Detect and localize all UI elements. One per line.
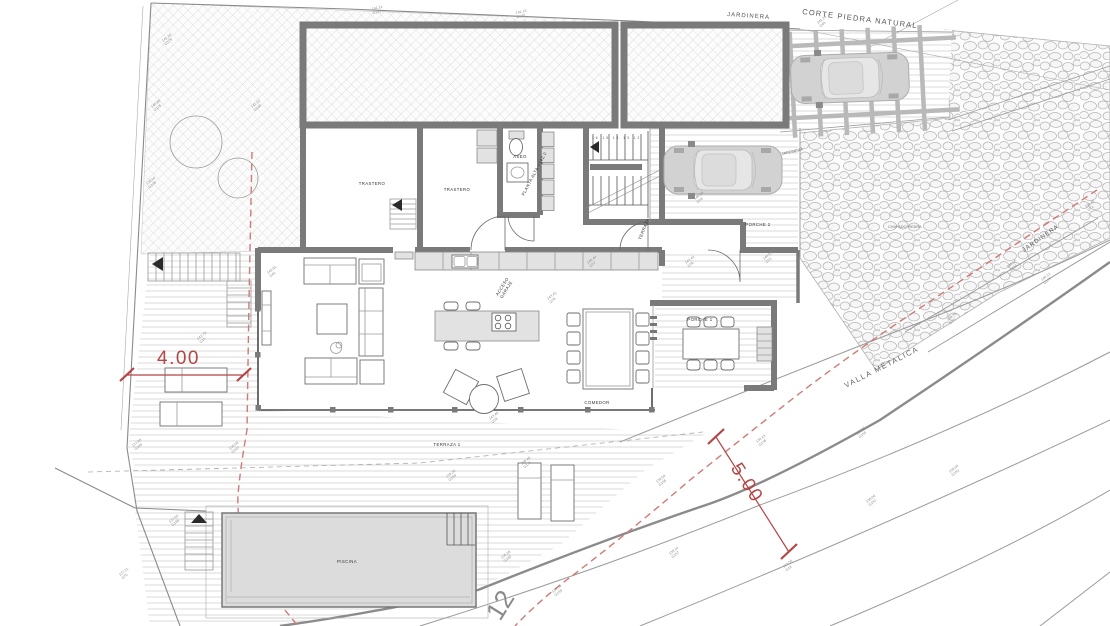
room-label-porche2: PORCHE 2 [745,222,770,227]
room-label-aseo: ASEO [513,154,527,159]
entrance-step [395,252,413,259]
survey-point-label: 133.50G16 [782,559,796,572]
car-in-carport [664,141,782,199]
cooktop [492,313,516,331]
stair-core: 16 15 14 13 12 [586,131,660,218]
dining-table [583,309,633,389]
survey-point-label: 138.14G157 [668,546,682,559]
stair-direction-arrow [590,141,599,153]
room-label-terraza1: TERRAZA 1 [434,442,461,447]
room-label-acceso-garaje: ACCESOGARAJE [495,276,515,299]
floor-plan-drawing: 16 15 14 13 12 [0,0,1110,626]
outdoor-table [683,329,739,359]
dimension-5m: 5.00 [708,429,797,559]
barbecue [757,327,772,361]
room-label-comedor: COMEDOR [584,400,609,405]
site-label-jardinera-top: JARDINERA [727,12,770,21]
kitchen-island [435,311,539,341]
room-label-trastero2: TRASTERO [444,187,471,192]
armchair [359,259,384,284]
sofa-long [359,288,383,356]
tv-unit [262,291,271,345]
site-label-chapado-piedra: CHAPADO PIEDRA [888,225,922,229]
dining-area [567,309,649,389]
survey-point-label: 139.64G152 [948,464,962,477]
trastero-stair [390,199,416,229]
upper-storage-block [303,25,786,125]
survey-point-label: 138.43G136 [755,434,769,447]
plot-number: 12 [480,585,521,625]
survey-point-label: 138.06G153 [865,494,879,507]
survey-point-label: 143.41G35 [546,291,560,304]
toilet [510,139,523,156]
stair-tread-numbers: 16 15 14 13 12 [592,136,641,140]
dimension-text-4m: 4.00 [157,348,200,369]
washbasin [507,163,528,182]
room-label-trastero1: TRASTERO [359,181,386,186]
survey-point-label: 139.09G156 [655,474,669,487]
survey-point-label: 138.09G159 [551,584,565,597]
armchair [360,360,384,384]
room-label-piscina: PISCINA [337,559,357,564]
car-on-ramp [790,47,910,109]
coffee-table [317,304,347,334]
survey-point-label: 143.40G38 [488,411,502,424]
poufs [443,369,529,414]
survey-point-label: 142.81G41 [266,265,280,278]
survey-point-label: 137.21G70 [118,567,132,580]
room-label-porche1: PORCHE 1 [687,317,712,322]
